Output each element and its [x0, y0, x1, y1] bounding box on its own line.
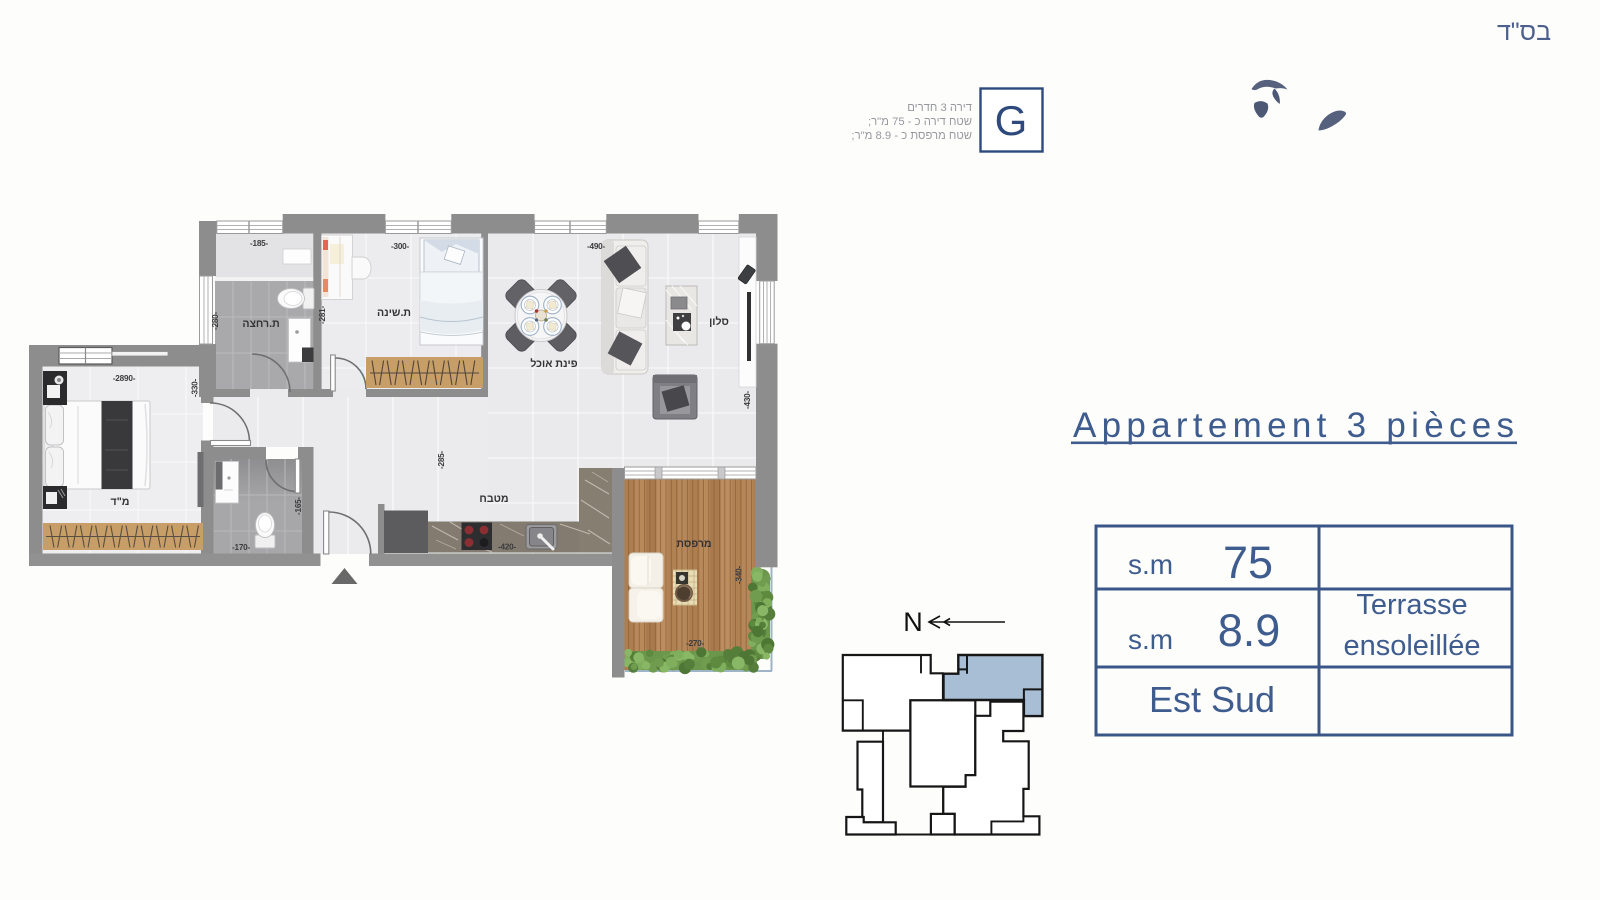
- svg-text:ת.רחצה: ת.רחצה: [242, 318, 279, 330]
- svg-text:75: 75: [1223, 537, 1273, 588]
- svg-text:מטבח: מטבח: [479, 493, 508, 505]
- svg-text:-170-: -170-: [232, 543, 251, 552]
- svg-text:מרפסת: מרפסת: [676, 538, 711, 550]
- svg-text:Terrasse: Terrasse: [1356, 589, 1467, 621]
- svg-text:מ"ד: מ"ד: [111, 496, 130, 508]
- svg-text:בס"ד: בס"ד: [1497, 18, 1551, 46]
- svg-text:ensoleillée: ensoleillée: [1343, 630, 1480, 662]
- svg-text:-300-: -300-: [391, 242, 410, 251]
- svg-text:-340-: -340-: [735, 565, 744, 584]
- svg-text:-270-: -270-: [686, 639, 705, 648]
- svg-text:8.9: 8.9: [1218, 605, 1281, 656]
- svg-text:Est Sud: Est Sud: [1149, 679, 1275, 720]
- svg-text:דירה 3 חדרים: דירה 3 חדרים: [907, 102, 972, 114]
- svg-text:סלון: סלון: [709, 316, 729, 328]
- svg-text:s.m: s.m: [1128, 549, 1173, 580]
- svg-text:-281-: -281-: [318, 305, 327, 324]
- svg-text:-420-: -420-: [498, 543, 517, 552]
- svg-text:-330-: -330-: [191, 378, 200, 397]
- svg-text:-185-: -185-: [250, 239, 269, 248]
- svg-text:-430-: -430-: [743, 390, 752, 409]
- svg-text:;שטח דירה כ - 75 מ"ר: ;שטח דירה כ - 75 מ"ר: [868, 116, 972, 128]
- svg-text:;שטח מרפסת כ - 8.9 מ"ר: ;שטח מרפסת כ - 8.9 מ"ר: [851, 130, 972, 142]
- svg-text:פינת אוכל: פינת אוכל: [530, 358, 577, 370]
- svg-text:-490-: -490-: [587, 242, 606, 251]
- svg-text:ת.שינה: ת.שינה: [377, 307, 411, 319]
- svg-text:N: N: [903, 607, 923, 637]
- svg-text:-280-: -280-: [211, 311, 220, 330]
- svg-text:-165-: -165-: [294, 496, 303, 515]
- svg-text:s.m: s.m: [1128, 624, 1173, 655]
- svg-text:G: G: [995, 97, 1028, 144]
- svg-text:-2890-: -2890-: [113, 374, 136, 383]
- svg-text:-285-: -285-: [437, 450, 446, 469]
